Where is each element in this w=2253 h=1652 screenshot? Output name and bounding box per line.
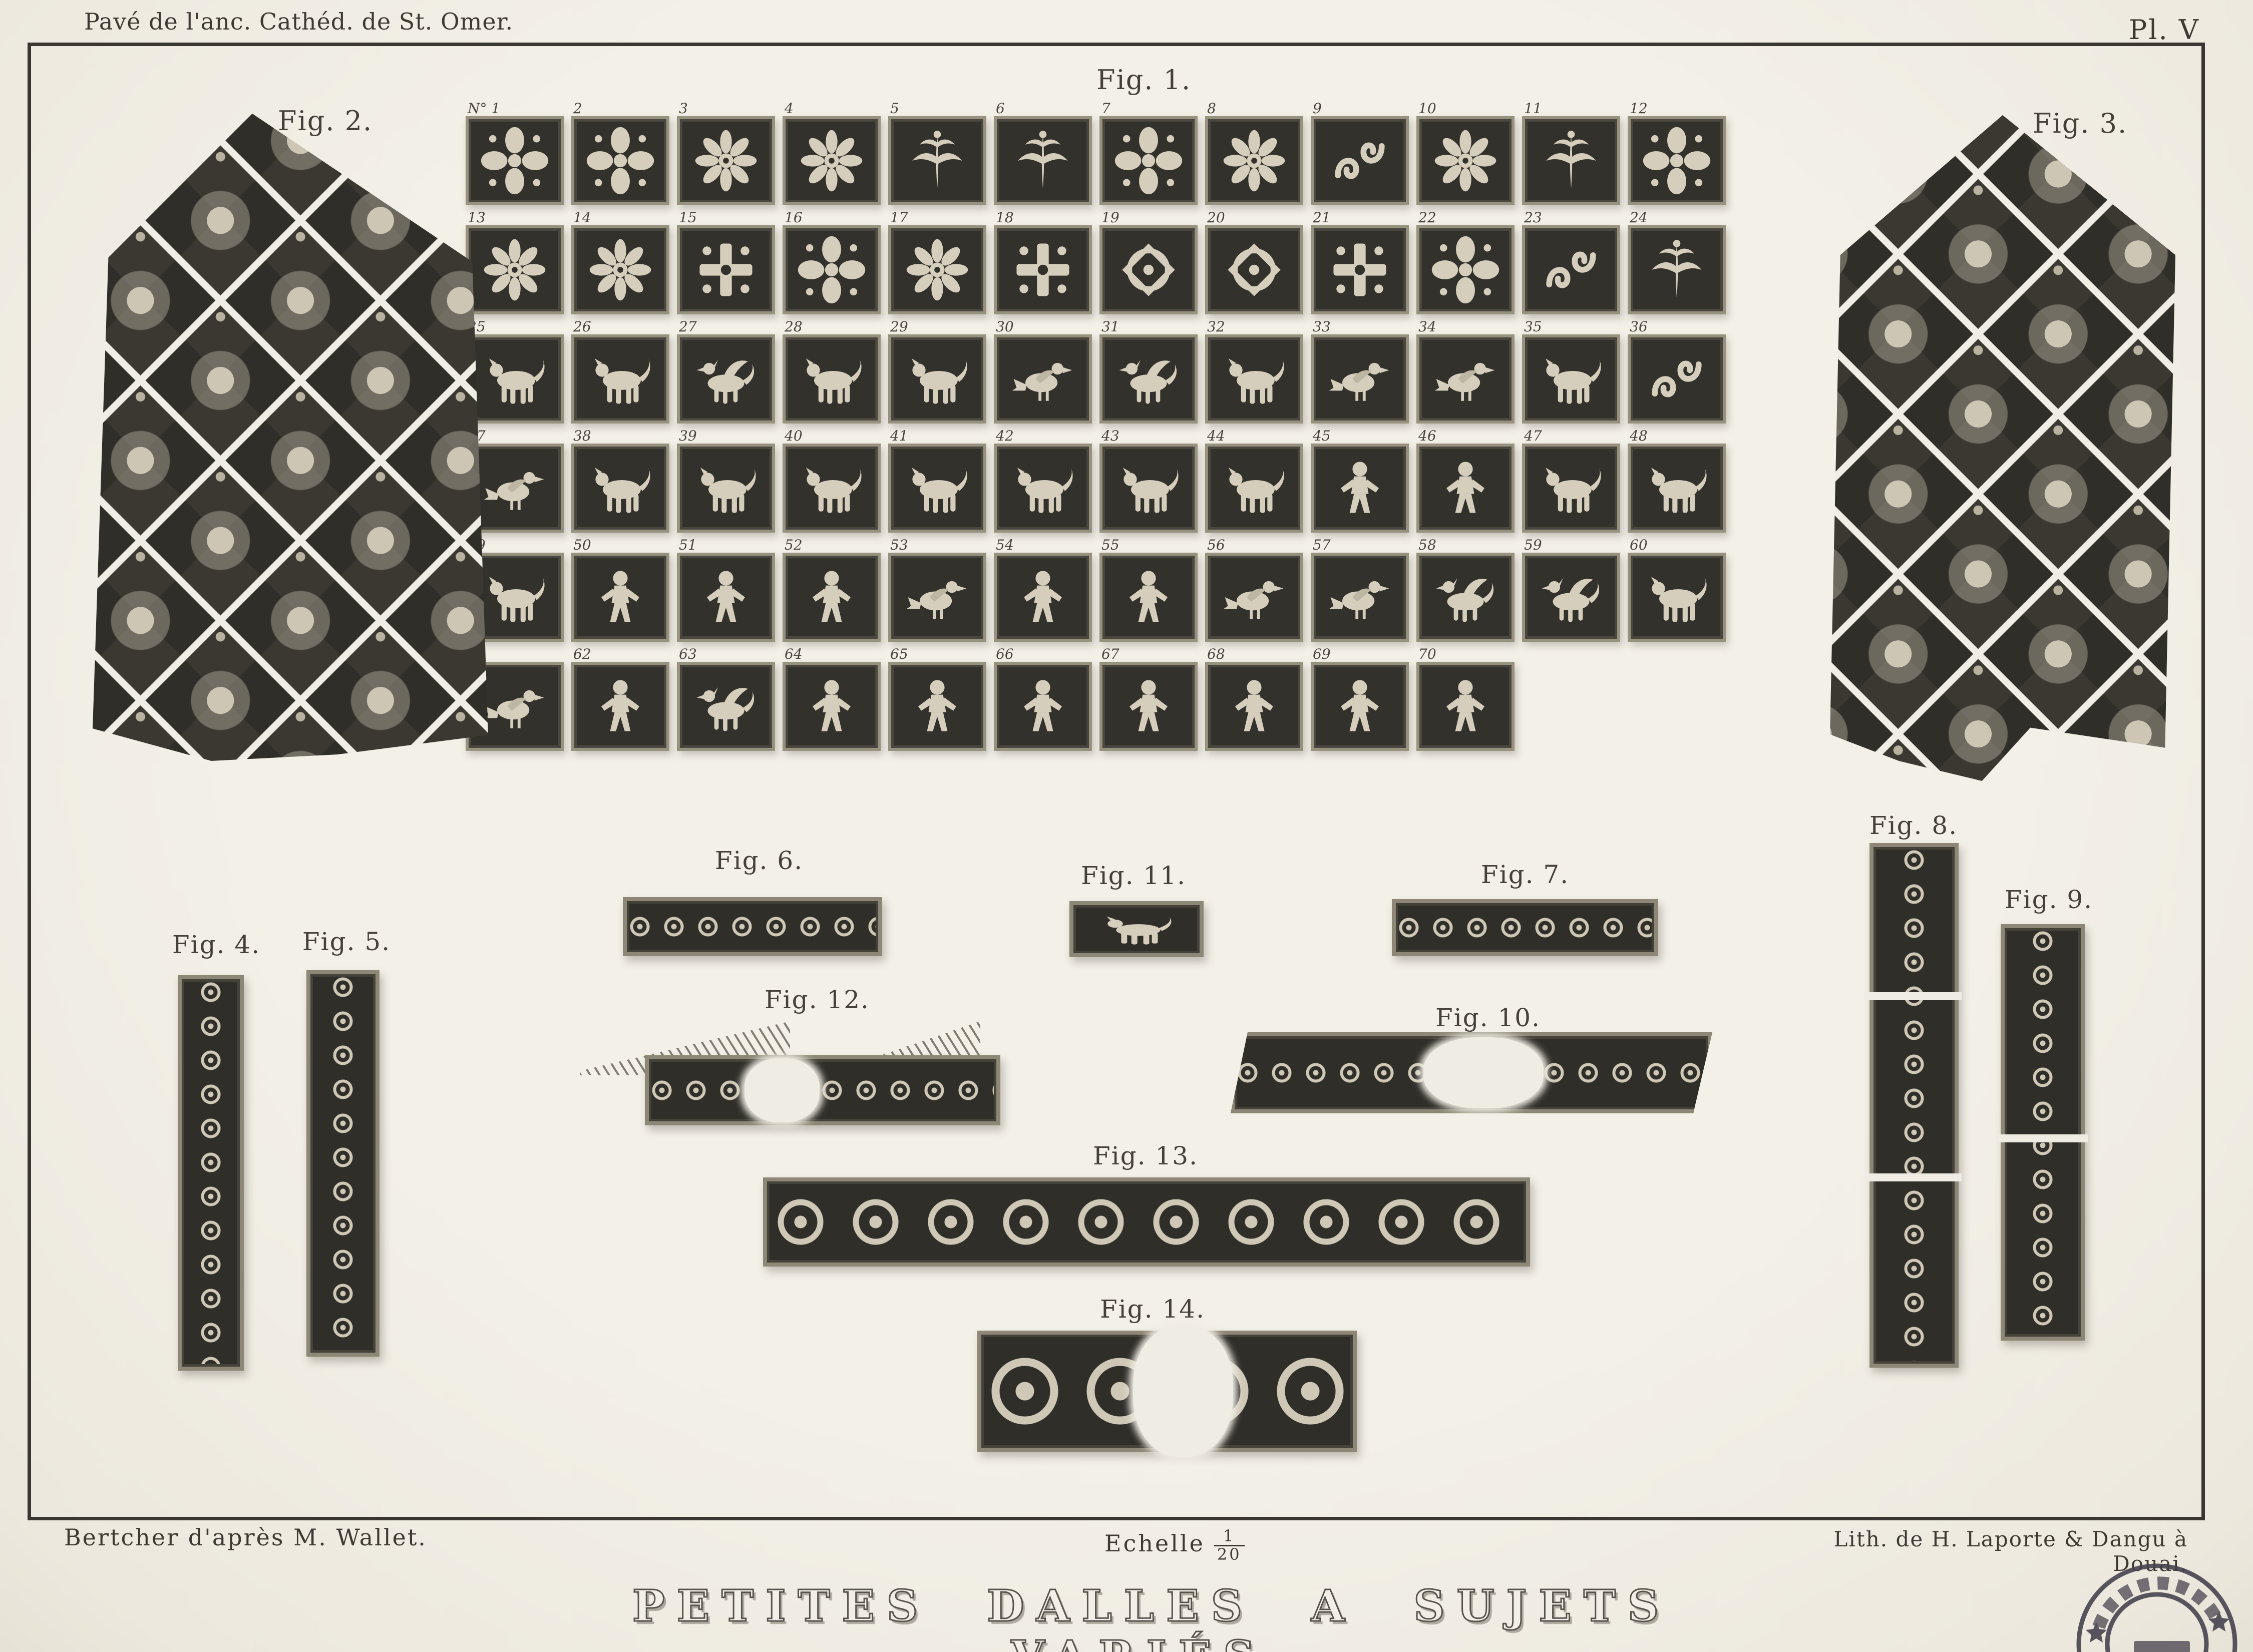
fig13-label: Fig. 13. [1093,1141,1198,1170]
bird-icon [1214,561,1294,634]
figure-icon [897,670,977,743]
tile-face [571,225,669,314]
fig14-label: Fig. 14. [1100,1295,1205,1324]
rosette-icon [580,233,660,306]
tile-number: 23 [1522,210,1620,225]
beast-icon [792,342,872,416]
rosette-icon [897,233,977,306]
fig1-tile: 62 [571,647,669,751]
figure-icon [1425,452,1506,525]
tile-face [994,553,1092,642]
fig6-label: Fig. 6. [715,846,803,875]
beast-icon [686,452,766,525]
fig1-tile: 6 [994,101,1092,205]
griffin-icon [1531,561,1611,634]
tile-face [1205,662,1303,751]
tile-number: 2 [571,101,669,116]
tile-face [888,334,986,424]
tile-number: 44 [1205,429,1303,444]
fig1-tile: 18 [994,210,1092,314]
fig1-tile: 11 [1522,101,1620,205]
tile-number: 41 [888,429,986,444]
figure-icon [792,561,872,634]
beast-icon [1003,452,1083,525]
fig8-border-strip [1869,843,1959,1368]
figure-icon [580,561,660,634]
fig1-tile-grid: N° 1 2 3 [466,101,1726,751]
figure-icon [1425,670,1506,743]
tile-number: 53 [888,538,986,553]
tile-number: 63 [677,647,775,662]
rosette-icon [686,124,766,197]
tile-face [1522,225,1620,314]
tile-number: 65 [888,647,986,662]
beast-icon [897,452,977,525]
tile-number: 54 [994,538,1092,553]
tile-number: 30 [994,319,1092,334]
fig1-tile: 5 [888,101,986,205]
fig1-tile: 59 [1522,538,1620,642]
fig1-tile: 17 [888,210,986,314]
fig1-tile: 40 [783,429,881,533]
tile-face [677,334,775,424]
tile-number: 8 [1205,101,1303,116]
fig1-tile: 44 [1205,429,1303,533]
fig1-tile: 19 [1099,210,1198,314]
figure-icon [580,670,660,743]
bird-icon [897,561,977,634]
fig1-tile: 31 [1099,319,1198,424]
fig1-label: Fig. 1. [1096,64,1191,96]
leaf-icon [1531,124,1611,197]
fig5-label: Fig. 5. [302,927,391,956]
beast-icon [1214,342,1294,416]
fig1-tile: 60 [1628,538,1726,642]
tile-face [1416,553,1515,642]
tile-number: 46 [1416,429,1515,444]
tile-number: 38 [571,429,669,444]
tile-face [1099,444,1198,533]
tile-number: 3 [677,101,775,116]
tile-face [1311,334,1409,424]
tile-number: 60 [1628,538,1726,553]
tile-face [571,116,669,205]
tile-face [783,553,881,642]
tile-number: 56 [1205,538,1303,553]
fig1-tile: 27 [677,319,775,424]
tile-number: 39 [677,429,775,444]
fig11-border-strip [1069,901,1204,957]
tile-number: 70 [1416,647,1515,662]
scale-fraction: 120 [1214,1528,1245,1563]
worn-area [1133,1326,1233,1456]
tile-face [1628,116,1726,205]
tile-face [1416,662,1515,751]
tile-number: 26 [571,319,669,334]
tile-number: 62 [571,647,669,662]
tile-face [1416,116,1515,205]
tile-number: 11 [1522,101,1620,116]
fig9-border-strip [2001,924,2085,1341]
tile-face [1099,334,1198,424]
fig7-border-strip [1392,899,1658,956]
fig1-tile: 41 [888,429,986,533]
tile-number: 58 [1416,538,1515,553]
fig1-tile: 65 [888,647,986,751]
tile-number: 29 [888,319,986,334]
tile-face [888,444,986,533]
beast-icon [580,342,660,416]
fig1-tile: 26 [571,319,669,424]
tile-number: 16 [783,210,881,225]
fig6-border-strip [623,897,882,956]
tile-number: 33 [1311,319,1409,334]
tile-face [571,662,669,751]
tile-number: 47 [1522,429,1620,444]
fig8-label: Fig. 8. [1869,811,1958,840]
fig9-label: Fig. 9. [2005,885,2093,914]
fig1-tile: 2 [571,101,669,205]
tile-number: 4 [783,101,881,116]
worn-area [1423,1037,1544,1109]
fig1-tile: 15 [677,210,775,314]
fig5-border-strip [306,970,380,1357]
fig1-tile: 54 [994,538,1092,642]
fig4-label: Fig. 4. [172,930,260,959]
tile-joint [1998,1134,2088,1142]
fig1-tile: 39 [677,429,775,533]
tile-face [994,444,1092,533]
tile-face [677,662,775,751]
tile-face [677,116,775,205]
fig1-tile: 68 [1205,647,1303,751]
fig1-tile: 24 [1628,210,1726,314]
tile-face [888,225,986,314]
tile-face [571,444,669,533]
fig1-tile: 46 [1416,429,1515,533]
tile-number: 42 [994,429,1092,444]
tile-face [1522,334,1620,424]
tile-number: 14 [571,210,669,225]
tile-face [571,553,669,642]
tile-face [994,116,1092,205]
tile-number: 21 [1311,210,1409,225]
beast-icon [580,452,660,525]
fig1-tile: 67 [1099,647,1198,751]
tile-number: 22 [1416,210,1515,225]
fig1-tile: 4 [783,101,881,205]
quatrefoil-icon [580,124,660,197]
fig10-border-strip [1231,1032,1712,1113]
tile-number: 43 [1099,429,1198,444]
tile-face [1628,225,1726,314]
tile-face [783,662,881,751]
rosette-icon [1425,124,1506,197]
figure-icon [792,670,872,743]
figure-icon [1108,561,1189,634]
beast-icon [897,342,977,416]
tile-face [571,334,669,424]
figure-icon [1003,561,1083,634]
fig3-label: Fig. 3. [2033,108,2127,139]
fig1-tile: 69 [1311,647,1409,751]
fig1-tile: 33 [1311,319,1409,424]
beast-icon [1108,452,1189,525]
fig1-tile: 42 [994,429,1092,533]
tile-number: 51 [677,538,775,553]
cross-icon [686,233,766,306]
tile-face [1099,116,1198,205]
tile-number: 6 [994,101,1092,116]
tile-number: 24 [1628,210,1726,225]
tile-number: 19 [1099,210,1198,225]
tile-face [1628,553,1726,642]
knot-icon [1214,233,1294,306]
figure-icon [1108,670,1189,743]
beast-icon [1531,342,1611,416]
fig1-tile: 53 [888,538,986,642]
tile-face [1522,116,1620,205]
tile-number: 7 [1099,101,1198,116]
fig1-tile: 22 [1416,210,1515,314]
quatrefoil-icon [792,233,872,306]
tile-face [1522,553,1620,642]
tile-face [994,225,1092,314]
tile-face [994,662,1092,751]
fig1-tile: 23 [1522,210,1620,314]
tile-number: 28 [783,319,881,334]
scroll-icon [1637,342,1717,416]
plate-number: Pl. V [2129,14,2200,46]
tile-number: 36 [1628,319,1726,334]
tile-number: 12 [1628,101,1726,116]
tile-number: 69 [1311,647,1409,662]
tile-face [1205,116,1303,205]
leaf-icon [1637,233,1717,306]
scale-label: Echelle [1104,1530,1205,1557]
fig1-tile: 16 [783,210,881,314]
tile-number: 50 [571,538,669,553]
fig1-tile: 70 [1416,647,1515,751]
fig1-tile: 64 [783,647,881,751]
figure-icon [1003,670,1083,743]
artist-credit: Bertcher d'après M. Wallet. [64,1524,427,1551]
scale-note: Echelle120 [1104,1528,1245,1563]
tile-face [1416,225,1515,314]
figure-icon [1214,670,1294,743]
bird-icon [1425,342,1506,416]
fig1-tile: 55 [1099,538,1198,642]
tile-number: 52 [783,538,881,553]
fig1-tile: 8 [1205,101,1303,205]
tile-face [888,662,986,751]
tile-number: 68 [1205,647,1303,662]
beast-icon [1637,561,1717,634]
tile-face [1522,444,1620,533]
tile-face [1099,553,1198,642]
tile-number: 35 [1522,319,1620,334]
fig1-tile: 38 [571,429,669,533]
griffin-icon [1108,342,1189,416]
scale-numerator: 1 [1214,1528,1245,1546]
tile-number: 31 [1099,319,1198,334]
beast-icon [792,452,872,525]
fig1-tile: 63 [677,647,775,751]
tile-face [1205,444,1303,533]
fig1-tile: 7 [1099,101,1198,205]
worn-area [744,1058,820,1123]
scale-denominator: 20 [1214,1546,1245,1563]
tile-number: 32 [1205,319,1303,334]
tile-number: 48 [1628,429,1726,444]
tile-face [1628,334,1726,424]
header-caption: Pavé de l'anc. Cathéd. de St. Omer. [84,8,513,35]
fig4-border-strip [178,975,244,1371]
tile-face [994,334,1092,424]
tile-number: 45 [1311,429,1409,444]
scroll-icon [1531,233,1611,306]
bird-icon [1003,342,1083,416]
tile-face [888,116,986,205]
tile-number: 15 [677,210,775,225]
fig7-label: Fig. 7. [1481,860,1569,889]
tile-face [1311,662,1409,751]
figure-icon [1320,670,1400,743]
tile-number: 20 [1205,210,1303,225]
quatrefoil-icon [1637,124,1717,197]
fig1-tile: 34 [1416,319,1515,424]
tile-face [783,444,881,533]
tile-number: 55 [1099,538,1198,553]
tile-number: 9 [1311,101,1409,116]
beast-icon [1094,907,1179,952]
tile-face [1311,116,1409,205]
fig1-tile: 47 [1522,429,1620,533]
leaf-icon [1003,124,1083,197]
fig1-tile: 43 [1099,429,1198,533]
tile-joint [1866,992,1962,1000]
tile-number: 59 [1522,538,1620,553]
fig14-border-strip [977,1331,1357,1452]
fig1-tile: 32 [1205,319,1303,424]
beast-icon [1531,452,1611,525]
tile-number: 18 [994,210,1092,225]
stamp-center-text-illegible [2134,1641,2190,1652]
fig11-label: Fig. 11. [1081,861,1186,890]
tile-face [1311,444,1409,533]
tile-face [1416,444,1515,533]
tile-face [783,225,881,314]
cross-icon [1320,233,1400,306]
library-stamp [2073,1557,2243,1652]
fig12-fragment [580,1021,1010,1126]
quatrefoil-icon [1425,233,1506,306]
tile-face [677,225,775,314]
fig12-border-strip [645,1055,1000,1125]
rosette-icon [1214,124,1294,197]
bird-icon [1320,561,1400,634]
tile-face [1205,553,1303,642]
tile-joint [1866,1173,1962,1181]
tile-number: 40 [783,429,881,444]
knot-icon [1108,233,1189,306]
tile-face [1311,225,1409,314]
tile-face [677,444,775,533]
fig2-label: Fig. 2. [278,105,372,137]
scroll-icon [1320,124,1400,197]
tile-number: 5 [888,101,986,116]
tile-number: 34 [1416,319,1515,334]
tile-face [783,334,881,424]
tile-face [1628,444,1726,533]
section-hatching [875,1021,980,1057]
fig1-tile: 36 [1628,319,1726,424]
tile-number: 66 [994,647,1092,662]
tile-face [677,553,775,642]
figure-icon [686,561,766,634]
tile-face [1311,553,1409,642]
fig1-tile: 3 [677,101,775,205]
fig1-tile: 9 [1311,101,1409,205]
fig1-tile: 28 [783,319,881,424]
griffin-icon [686,342,766,416]
fig1-tile: 45 [1311,429,1409,533]
fig1-tile: 21 [1311,210,1409,314]
bird-icon [1320,342,1400,416]
tile-face [888,553,986,642]
figure-icon [1320,452,1400,525]
fig1-tile: 10 [1416,101,1515,205]
griffin-icon [1425,561,1506,634]
fig1-tile: 30 [994,319,1092,424]
fig1-tile: 52 [783,538,881,642]
fig1-tile: 50 [571,538,669,642]
tile-number: 27 [677,319,775,334]
fig1-tile: 14 [571,210,669,314]
fig2-number-labels [70,95,511,791]
griffin-icon [686,670,766,743]
tile-face [1099,225,1198,314]
tile-number: 67 [1099,647,1198,662]
fig10-label: Fig. 10. [1435,1003,1541,1032]
fig1-tile: 20 [1205,210,1303,314]
tile-face [1099,662,1198,751]
fig1-tile: 56 [1205,538,1303,642]
fig13-border-strip [763,1177,1530,1267]
fig1-tile: 51 [677,538,775,642]
leaf-icon [897,124,977,197]
lithograph-plate: Pavé de l'anc. Cathéd. de St. Omer. Pl. … [0,0,2253,1652]
fig3-number-labels [1802,95,2223,796]
tile-number: 64 [783,647,881,662]
quatrefoil-icon [1108,124,1189,197]
tile-face [1205,334,1303,424]
fig1-tile: 35 [1522,319,1620,424]
beast-icon [1214,452,1294,525]
tile-number: 57 [1311,538,1409,553]
plate-title: PETITES DALLES A SUJETS VARIÉS. [621,1581,1682,1652]
fig1-tile: 66 [994,647,1092,751]
fig1-tile: 12 [1628,101,1726,205]
tile-number: 10 [1416,101,1515,116]
fig1-tile: 29 [888,319,986,424]
tile-face [783,116,881,205]
beast-icon [1637,452,1717,525]
cross-icon [1003,233,1083,306]
fig1-tile: 48 [1628,429,1726,533]
rosette-icon [792,124,872,197]
tile-face [1416,334,1515,424]
